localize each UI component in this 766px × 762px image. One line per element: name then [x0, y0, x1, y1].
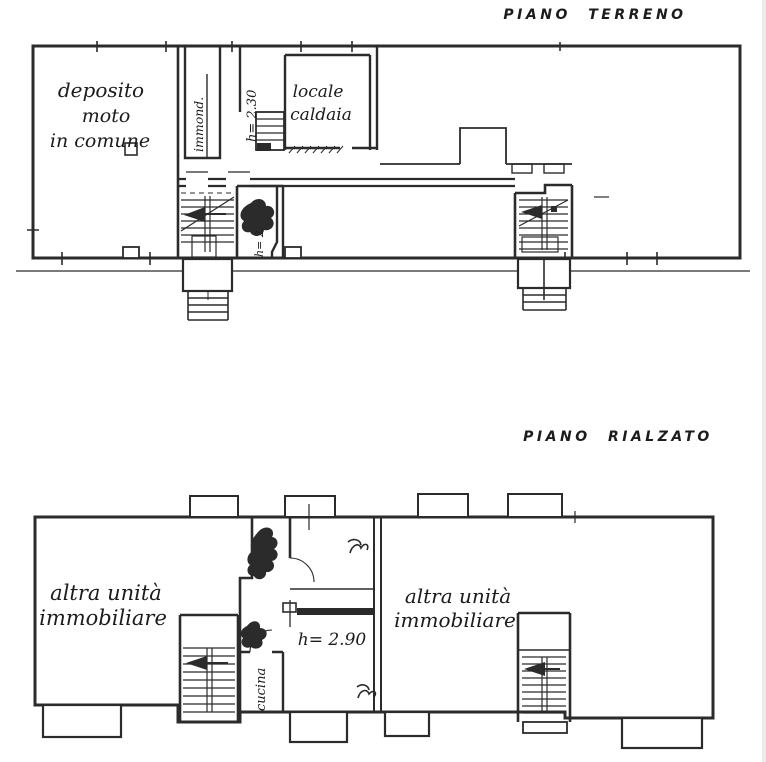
bathroom-left-wall [240, 517, 252, 712]
caldaia-label-line2: caldaia [290, 105, 352, 125]
top-pillar-box [418, 494, 468, 517]
deposito-label-line2: moto [82, 105, 131, 127]
top-pillar-box [508, 494, 562, 517]
parapet-pillar [544, 164, 564, 173]
raised-left-stairwell [180, 615, 238, 722]
balcony-box [43, 705, 121, 737]
small-room-height-label: h= 2. [253, 227, 266, 257]
partition-wall [297, 608, 374, 615]
stair-post [551, 206, 557, 212]
wall-pillar [285, 247, 301, 258]
ground-right-entrance-stairs [518, 259, 570, 310]
balcony-box [622, 718, 702, 748]
stair-landing [192, 236, 216, 257]
deposito-label-line1: deposito [58, 78, 144, 102]
caldaia-label-line1: locale [293, 82, 344, 102]
stair-rail [205, 196, 210, 252]
deposito-label-line3: in comune [50, 130, 150, 152]
balcony-box [385, 712, 429, 736]
ground-right-stairwell [515, 185, 572, 258]
left-unit-label-line2: immobiliare [39, 606, 167, 630]
stair-treads [519, 200, 568, 249]
corridor-walls [178, 179, 515, 186]
ground-small-room: h= 2. [240, 186, 283, 258]
caldaia-door-fill [257, 143, 271, 151]
raised-right-stairwell [518, 613, 570, 722]
kitchen-label: cucina [254, 668, 269, 711]
right-unit-label-line1: altra unità [405, 584, 511, 608]
raised-central-unit: cucina h= 2.90 [240, 517, 381, 712]
ground-center-entrance-stairs [183, 259, 232, 320]
ground-floor-plan: PIANO TERRENO deposito moto in comune im… [16, 7, 750, 320]
ink-squiggle [348, 540, 368, 553]
stair-landing [522, 237, 558, 252]
floor-plan-drawing: PIANO TERRENO deposito moto in comune im… [0, 0, 766, 762]
right-unit-label-line2: immobiliare [394, 608, 516, 632]
immond-label: immond. [191, 97, 206, 152]
stairwell-walls [180, 615, 238, 722]
ground-floor-title: PIANO TERRENO [503, 7, 686, 23]
stair-direction-arrow [184, 207, 205, 222]
left-unit-label-line1: altra unità [50, 581, 162, 605]
entrance-landing [183, 259, 232, 291]
entry-step [523, 722, 567, 733]
raised-floor-plan: PIANO RIALZATO altra unità immobiliare a… [35, 429, 713, 748]
caldaia-stair-treads [256, 119, 284, 140]
ink-squiggle [357, 685, 375, 698]
ink-scribble [241, 621, 267, 648]
stair-direction-arrow [186, 656, 207, 670]
small-room-walls [272, 186, 283, 258]
inner-parapet [380, 128, 572, 164]
wall-pillar [123, 247, 139, 258]
room-height-label: h= 2.90 [298, 630, 367, 650]
balcony-box [290, 712, 347, 742]
door-swing-arc [290, 558, 314, 582]
parapet-pillar [512, 164, 532, 173]
wall-ticks [27, 41, 657, 265]
scan-edge [762, 0, 766, 762]
raised-floor-title: PIANO RIALZATO [523, 429, 713, 445]
top-pillar-box [285, 496, 335, 517]
floor-plan-document: PIANO TERRENO deposito moto in comune im… [0, 0, 766, 762]
unit-separation-wall [374, 517, 381, 712]
stair-treads [183, 648, 235, 712]
top-pillar-box [190, 496, 238, 517]
caldaia-height-label: h= 2.30 [245, 90, 260, 142]
